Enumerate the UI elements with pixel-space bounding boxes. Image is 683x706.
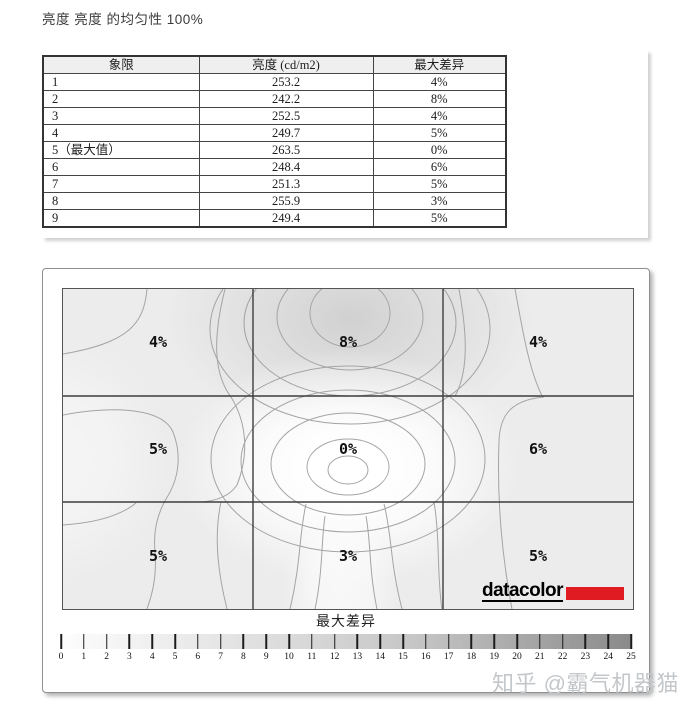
colorbar-tick — [607, 634, 609, 649]
table-cell: 248.4 — [199, 159, 373, 176]
table-cell: 242.2 — [199, 91, 373, 108]
colorbar-tick — [60, 634, 62, 649]
table-cell: 6% — [373, 159, 506, 176]
table-cell: 2 — [43, 91, 199, 108]
colorbar-tick — [288, 634, 290, 649]
colorbar-tick-label: 6 — [195, 652, 200, 662]
table-cell: 1 — [43, 74, 199, 91]
colorbar-tick-label: 7 — [218, 652, 223, 662]
cell-label-r2c1: 3% — [253, 502, 443, 609]
colorbar-tick — [311, 634, 313, 649]
colorbar-tick — [357, 634, 359, 649]
uniformity-chart-box: 4% 8% 4% 5% 0% 6% 5% 3% 5% datacolor 最大差… — [42, 268, 650, 693]
colorbar-tick-label: 18 — [467, 652, 477, 662]
cell-label-r0c2: 4% — [443, 289, 633, 396]
colorbar-tick-label: 11 — [307, 652, 316, 662]
colorbar-tick — [174, 634, 176, 649]
table-cell: 253.2 — [199, 74, 373, 91]
table-cell: 263.5 — [199, 142, 373, 159]
colorbar-tick-label: 24 — [603, 652, 613, 662]
datacolor-logo-text: datacolor — [482, 582, 563, 602]
uniformity-table: 象限 亮度 (cd/m2) 最大差异 1253.24% 2242.28% 325… — [42, 55, 507, 228]
colorbar-tick-label: 4 — [150, 652, 155, 662]
colorbar-tick-label: 10 — [284, 652, 294, 662]
colorbar — [61, 634, 631, 649]
cell-label-r0c1: 8% — [253, 289, 443, 396]
cell-label-r1c0: 5% — [63, 396, 253, 503]
colorbar-tick — [630, 634, 632, 649]
colorbar-tick — [265, 634, 267, 649]
table-cell: 3 — [43, 108, 199, 125]
colorbar-tick — [379, 634, 381, 649]
table-cell: 251.3 — [199, 176, 373, 193]
colorbar-tick — [129, 634, 131, 649]
colorbar-tick — [106, 634, 108, 649]
colorbar-tick-label: 16 — [421, 652, 431, 662]
colorbar-tick-label: 20 — [512, 652, 522, 662]
contour-plot: 4% 8% 4% 5% 0% 6% 5% 3% 5% datacolor — [62, 288, 634, 610]
colorbar-tick-label: 17 — [444, 652, 454, 662]
page-title: 亮度 亮度 的均匀性 100% — [42, 8, 203, 28]
col-header-luminance: 亮度 (cd/m2) — [199, 56, 373, 74]
colorbar-title: 最大差异 — [43, 611, 649, 631]
colorbar-tick-label: 15 — [398, 652, 408, 662]
table-cell: 8 — [43, 193, 199, 210]
colorbar-tick — [493, 634, 495, 649]
table-cell: 249.7 — [199, 125, 373, 142]
table-cell: 249.4 — [199, 210, 373, 228]
table-cell: 5（最大值） — [43, 142, 199, 159]
cell-label-grid: 4% 8% 4% 5% 0% 6% 5% 3% 5% — [63, 289, 633, 609]
col-header-maxdiff: 最大差异 — [373, 56, 506, 74]
colorbar-tick — [539, 634, 541, 649]
colorbar-tick-label: 12 — [330, 652, 340, 662]
table-row: 7251.35% — [43, 176, 506, 193]
table-row: 4249.75% — [43, 125, 506, 142]
colorbar-tick — [334, 634, 336, 649]
table-row: 5（最大值）263.50% — [43, 142, 506, 159]
colorbar-tick-label: 21 — [535, 652, 545, 662]
table-cell: 0% — [373, 142, 506, 159]
table-row: 2242.28% — [43, 91, 506, 108]
colorbar-tick-label: 0 — [59, 652, 64, 662]
datacolor-logo-redbar — [566, 587, 624, 600]
col-header-quadrant: 象限 — [43, 56, 199, 74]
colorbar-tick-label: 14 — [375, 652, 385, 662]
report-panel: 象限 亮度 (cd/m2) 最大差异 1253.24% 2242.28% 325… — [42, 50, 648, 238]
colorbar-tick-label: 25 — [626, 652, 636, 662]
zhihu-watermark: 知乎 @霸气机器猫 — [492, 666, 679, 698]
colorbar-tick — [197, 634, 199, 649]
table-cell: 5% — [373, 125, 506, 142]
colorbar-tick — [151, 634, 153, 649]
table-cell: 4 — [43, 125, 199, 142]
datacolor-logo: datacolor — [482, 582, 624, 602]
colorbar-tick — [448, 634, 450, 649]
colorbar-tick-label: 9 — [264, 652, 269, 662]
table-row: 3252.54% — [43, 108, 506, 125]
cell-label-r1c2: 6% — [443, 396, 633, 503]
colorbar-tick-label: 13 — [353, 652, 363, 662]
cell-label-r0c0: 4% — [63, 289, 253, 396]
report-page: 亮度 亮度 的均匀性 100% 象限 亮度 (cd/m2) 最大差异 1253.… — [0, 0, 683, 706]
table-cell: 4% — [373, 74, 506, 91]
colorbar-tick-label: 5 — [173, 652, 178, 662]
table-cell: 9 — [43, 210, 199, 228]
table-cell: 6 — [43, 159, 199, 176]
table-cell: 8% — [373, 91, 506, 108]
table-cell: 3% — [373, 193, 506, 210]
cell-label-r1c1: 0% — [253, 396, 443, 503]
table-cell: 7 — [43, 176, 199, 193]
colorbar-tick — [562, 634, 564, 649]
table-row: 9249.45% — [43, 210, 506, 228]
colorbar-tick-label: 22 — [558, 652, 568, 662]
colorbar-tick-label: 2 — [104, 652, 109, 662]
colorbar-tick-label: 23 — [581, 652, 591, 662]
cell-label-r2c0: 5% — [63, 502, 253, 609]
table-cell: 252.5 — [199, 108, 373, 125]
table-row: 6248.46% — [43, 159, 506, 176]
colorbar-tick-label: 8 — [241, 652, 246, 662]
colorbar-tick — [471, 634, 473, 649]
colorbar-tick-label: 3 — [127, 652, 132, 662]
colorbar-tick-label: 19 — [489, 652, 499, 662]
colorbar-tick — [83, 634, 85, 649]
table-cell: 5% — [373, 176, 506, 193]
colorbar-tick — [243, 634, 245, 649]
table-cell: 4% — [373, 108, 506, 125]
table-cell: 255.9 — [199, 193, 373, 210]
table-header-row: 象限 亮度 (cd/m2) 最大差异 — [43, 56, 506, 74]
table-cell: 5% — [373, 210, 506, 228]
table-row: 8255.93% — [43, 193, 506, 210]
colorbar-tick — [585, 634, 587, 649]
table-row: 1253.24% — [43, 74, 506, 91]
colorbar-tick — [220, 634, 222, 649]
colorbar-tick-label: 1 — [81, 652, 86, 662]
colorbar-numbers: 0123456789101112131415161718192021222324… — [61, 652, 631, 664]
colorbar-tick — [402, 634, 404, 649]
colorbar-tick — [516, 634, 518, 649]
colorbar-tick — [425, 634, 427, 649]
